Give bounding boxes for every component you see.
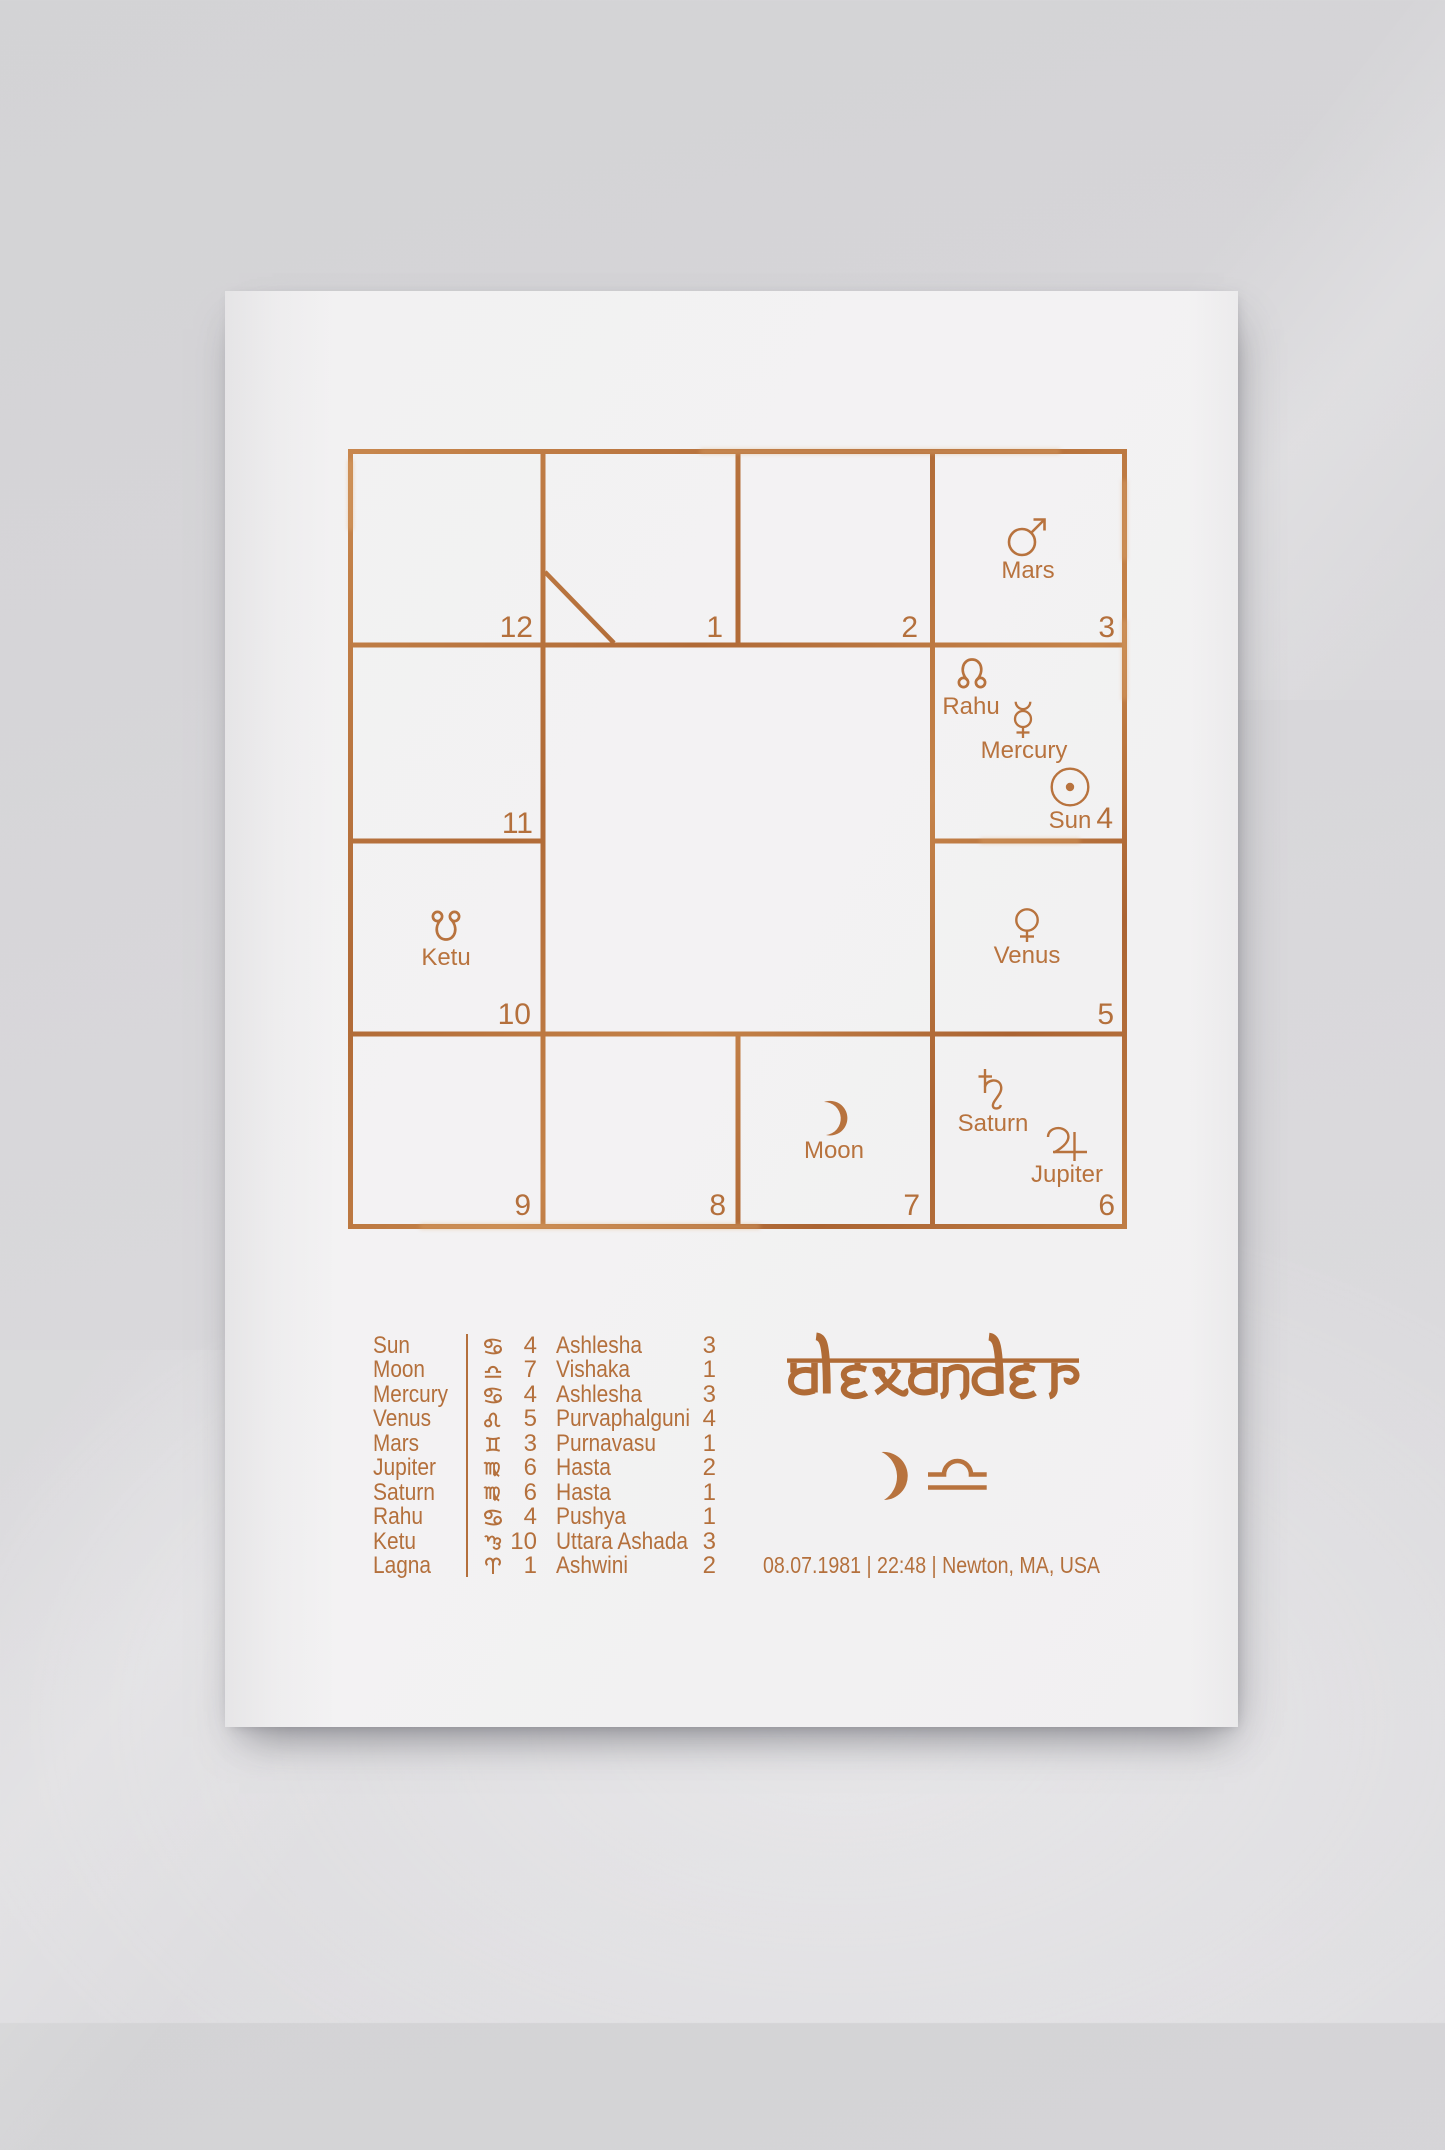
svg-text:Pushya: Pushya	[556, 1503, 627, 1530]
svg-text:Sun: Sun	[1049, 807, 1092, 834]
svg-text:3: 3	[703, 1528, 716, 1555]
svg-text:11: 11	[502, 807, 533, 840]
svg-text:Saturn: Saturn	[958, 1110, 1029, 1137]
svg-text:Moon: Moon	[373, 1356, 425, 1383]
svg-text:Mercury: Mercury	[981, 737, 1068, 764]
svg-text:4: 4	[524, 1332, 537, 1359]
svg-text:Rahu: Rahu	[942, 693, 999, 720]
svg-text:4: 4	[703, 1405, 716, 1432]
svg-text:12: 12	[500, 611, 533, 644]
svg-text:Mercury: Mercury	[373, 1381, 448, 1408]
svg-text:Rahu: Rahu	[373, 1503, 423, 1530]
svg-text:3: 3	[524, 1430, 537, 1457]
svg-text:3: 3	[703, 1381, 716, 1408]
svg-text:Mars: Mars	[373, 1430, 419, 1457]
svg-text:2: 2	[901, 611, 918, 644]
svg-text:5: 5	[524, 1405, 537, 1432]
svg-text:6: 6	[1098, 1189, 1115, 1222]
svg-text:1: 1	[524, 1552, 537, 1579]
svg-text:6: 6	[524, 1454, 537, 1481]
svg-text:4: 4	[524, 1381, 537, 1408]
svg-text:Hasta: Hasta	[556, 1454, 612, 1481]
svg-text:1: 1	[703, 1479, 716, 1506]
svg-text:4: 4	[1096, 802, 1113, 835]
svg-text:1: 1	[703, 1356, 716, 1383]
svg-text:6: 6	[524, 1479, 537, 1506]
svg-text:Purnavasu: Purnavasu	[556, 1430, 656, 1457]
svg-text:Jupiter: Jupiter	[1031, 1161, 1103, 1188]
svg-text:Vishaka: Vishaka	[556, 1356, 631, 1383]
svg-text:Hasta: Hasta	[556, 1479, 612, 1506]
svg-text:3: 3	[1098, 611, 1115, 644]
svg-text:5: 5	[1097, 998, 1114, 1031]
svg-text:Venus: Venus	[373, 1405, 431, 1432]
svg-text:Ketu: Ketu	[373, 1528, 416, 1555]
svg-text:Sun: Sun	[373, 1332, 410, 1359]
svg-text:9: 9	[514, 1189, 531, 1222]
svg-text:Mars: Mars	[1001, 557, 1054, 584]
svg-text:Ashlesha: Ashlesha	[556, 1381, 643, 1408]
svg-text:10: 10	[510, 1528, 537, 1555]
svg-text:Ketu: Ketu	[421, 944, 470, 971]
svg-text:Jupiter: Jupiter	[373, 1454, 436, 1481]
svg-text:Venus: Venus	[994, 942, 1061, 969]
svg-text:2: 2	[703, 1454, 716, 1481]
svg-text:1: 1	[706, 611, 723, 644]
svg-text:Ashwini: Ashwini	[556, 1552, 628, 1579]
svg-text:4: 4	[524, 1503, 537, 1530]
svg-text:7: 7	[524, 1356, 537, 1383]
svg-text:Moon: Moon	[804, 1137, 864, 1164]
svg-text:1: 1	[703, 1430, 716, 1457]
svg-text:3: 3	[703, 1332, 716, 1359]
svg-text:Lagna: Lagna	[373, 1552, 432, 1579]
svg-text:2: 2	[703, 1552, 716, 1579]
svg-text:Uttara Ashada: Uttara Ashada	[556, 1528, 689, 1555]
svg-text:1: 1	[703, 1503, 716, 1530]
svg-text:Ashlesha: Ashlesha	[556, 1332, 643, 1359]
svg-text:08.07.1981 | 22:48 | Newton, M: 08.07.1981 | 22:48 | Newton, MA, USA	[763, 1552, 1101, 1578]
svg-text:10: 10	[498, 998, 531, 1031]
svg-text:Saturn: Saturn	[373, 1479, 435, 1506]
svg-text:7: 7	[903, 1189, 920, 1222]
svg-text:Purvaphalguni: Purvaphalguni	[556, 1405, 690, 1432]
svg-text:8: 8	[709, 1189, 726, 1222]
